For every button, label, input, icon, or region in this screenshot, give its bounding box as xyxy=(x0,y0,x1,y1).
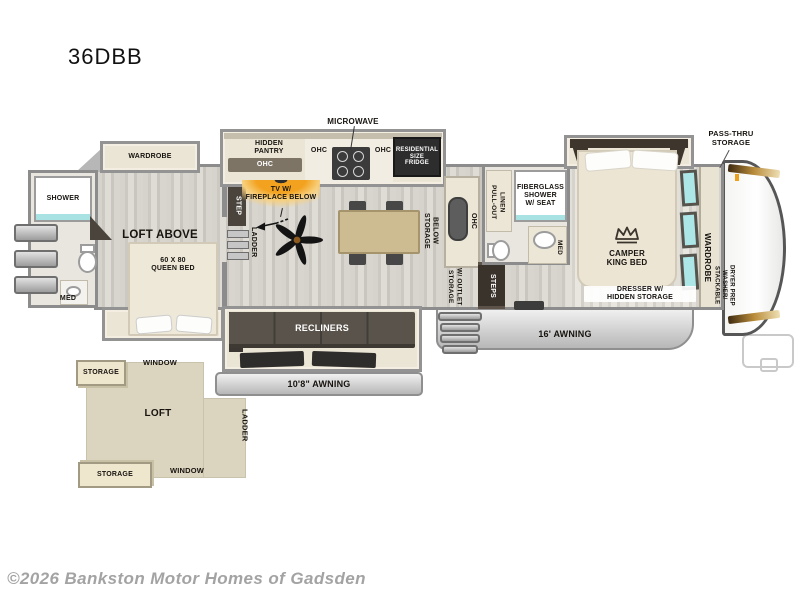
fiberglass-shower-label: FIBERGLASS SHOWER W/ SEAT xyxy=(517,184,564,208)
awning-10ft-label: 10'8" AWNING xyxy=(288,379,351,389)
step-label: STEP xyxy=(233,196,242,215)
hidden-pantry-label: HIDDEN PANTRY xyxy=(240,140,298,156)
divider-wall-bottom xyxy=(222,262,227,308)
bedroom-window-1 xyxy=(680,169,699,206)
recliner-mat-left xyxy=(240,351,304,368)
king-bed-label: CAMPER KING BED xyxy=(587,249,667,267)
pull-out-linen-label: PULL-OUT LINEN xyxy=(489,176,505,228)
front-wardrobe-label: WARDROBE xyxy=(702,212,712,304)
recliner-mat-right xyxy=(312,351,376,368)
loft-ladder-label: LADDER xyxy=(240,400,249,450)
rear-shower-label: SHOWER xyxy=(47,195,80,203)
fiberglass-shower-threshold xyxy=(516,215,565,220)
rear-step-2 xyxy=(14,250,58,268)
dinette-chair-4 xyxy=(386,253,403,265)
entry-step-4 xyxy=(442,345,478,354)
microwave-label: MICROWAVE xyxy=(320,117,386,126)
hitch-pin xyxy=(760,358,778,372)
queen-pillow-left xyxy=(135,314,172,334)
entry-step-2 xyxy=(440,323,480,332)
entry-step-3 xyxy=(440,334,480,343)
loft-storage-top-label: STORAGE xyxy=(83,369,119,377)
loft-window-bottom-label: WINDOW xyxy=(158,467,216,476)
loft-label: LOFT xyxy=(136,408,180,420)
bedroom-window-2 xyxy=(680,211,699,248)
front-cap-marker xyxy=(735,174,739,181)
pass-thru-label: PASS-THRU STORAGE xyxy=(698,130,764,147)
washer-dryer-label: STACKABLE WASHER/ DRYER PREP xyxy=(712,252,735,318)
queen-bed-label: 60 X 80 QUEEN BED xyxy=(128,257,218,273)
loft-storage-bottom: STORAGE xyxy=(78,462,152,488)
mid-toilet xyxy=(492,240,510,261)
crown-icon xyxy=(612,224,642,248)
rear-wardrobe-label: WARDROBE xyxy=(128,153,171,161)
tv-fireplace: TV W/ FIREPLACE BELOW xyxy=(242,180,320,208)
ladder-icon xyxy=(227,230,249,258)
fridge: RESIDENTIAL SIZE FRIDGE xyxy=(393,137,441,177)
recliner-sofa: RECLINERS xyxy=(229,312,415,348)
stove xyxy=(332,147,370,180)
island-ohc-label: OHC xyxy=(468,206,477,236)
rear-wardrobe-slide: WARDROBE xyxy=(100,141,200,173)
ohc-left-label: OHC xyxy=(306,147,332,155)
entry-step-1 xyxy=(438,312,482,321)
rear-roof-wedge xyxy=(76,148,102,172)
awning-16ft-label: 16' AWNING xyxy=(538,329,591,339)
loft-storage-top: STORAGE xyxy=(76,360,126,386)
rear-shower-threshold xyxy=(36,214,90,220)
fiberglass-shower: FIBERGLASS SHOWER W/ SEAT xyxy=(514,170,567,222)
queen-pillow-right xyxy=(175,314,212,334)
rear-shower: SHOWER xyxy=(34,176,92,222)
rear-step-3 xyxy=(14,276,58,294)
pantry-ohc-bar: OHC xyxy=(228,158,302,172)
rear-med-label: MED xyxy=(48,295,88,303)
loft-storage-bottom-label: STORAGE xyxy=(97,471,133,479)
copyright-text: ©2026 Bankston Motor Homes of Gadsden xyxy=(7,569,366,589)
storage-outlet-label: STORAGE W/ OUTLET xyxy=(446,264,462,310)
loft-above-label: LOFT ABOVE xyxy=(106,229,214,242)
interior-steps-box: STEPS xyxy=(478,262,505,309)
entry-door-mat xyxy=(514,301,544,310)
dinette-table xyxy=(338,210,420,254)
rear-toilet xyxy=(78,251,97,273)
fridge-label: RESIDENTIAL SIZE FRIDGE xyxy=(396,147,438,168)
floorplan-page: 36DBB 16' AWNING SHOWER MED WARDROBE LOF… xyxy=(0,0,800,600)
interior-steps-label: STEPS xyxy=(487,274,496,298)
ceiling-fan-icon xyxy=(250,208,324,266)
model-title: 36DBB xyxy=(68,44,143,70)
mid-sink xyxy=(533,231,556,249)
tv-fireplace-label: TV W/ FIREPLACE BELOW xyxy=(242,186,320,202)
loft-window-top-label: WINDOW xyxy=(132,359,188,368)
island-sink xyxy=(448,197,468,241)
dresser-label: DRESSER W/ HIDDEN STORAGE xyxy=(584,286,696,302)
rear-step-1 xyxy=(14,224,58,242)
bedroom-window-3 xyxy=(680,253,699,290)
king-pillow-right xyxy=(631,149,678,171)
mid-med-label: MED xyxy=(555,233,563,263)
pantry-ohc-label: OHC xyxy=(257,161,273,169)
storage-below-label: STORAGE BELOW xyxy=(421,204,439,258)
dinette-chair-3 xyxy=(349,253,366,265)
recliners-label: RECLINERS xyxy=(295,323,349,333)
awning-10ft: 10'8" AWNING xyxy=(215,372,423,396)
king-pillow-left xyxy=(584,149,631,172)
